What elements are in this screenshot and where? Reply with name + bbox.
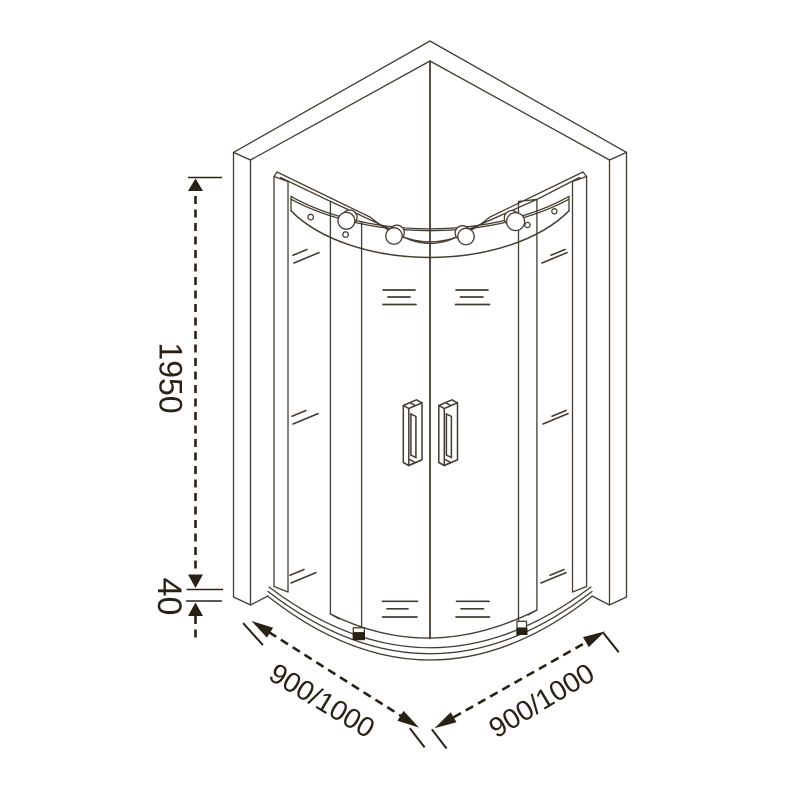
svg-text:40: 40 bbox=[150, 578, 188, 616]
svg-text:1950: 1950 bbox=[153, 342, 189, 413]
svg-text:900/1000: 900/1000 bbox=[264, 657, 380, 744]
svg-text:900/1000: 900/1000 bbox=[483, 657, 599, 744]
